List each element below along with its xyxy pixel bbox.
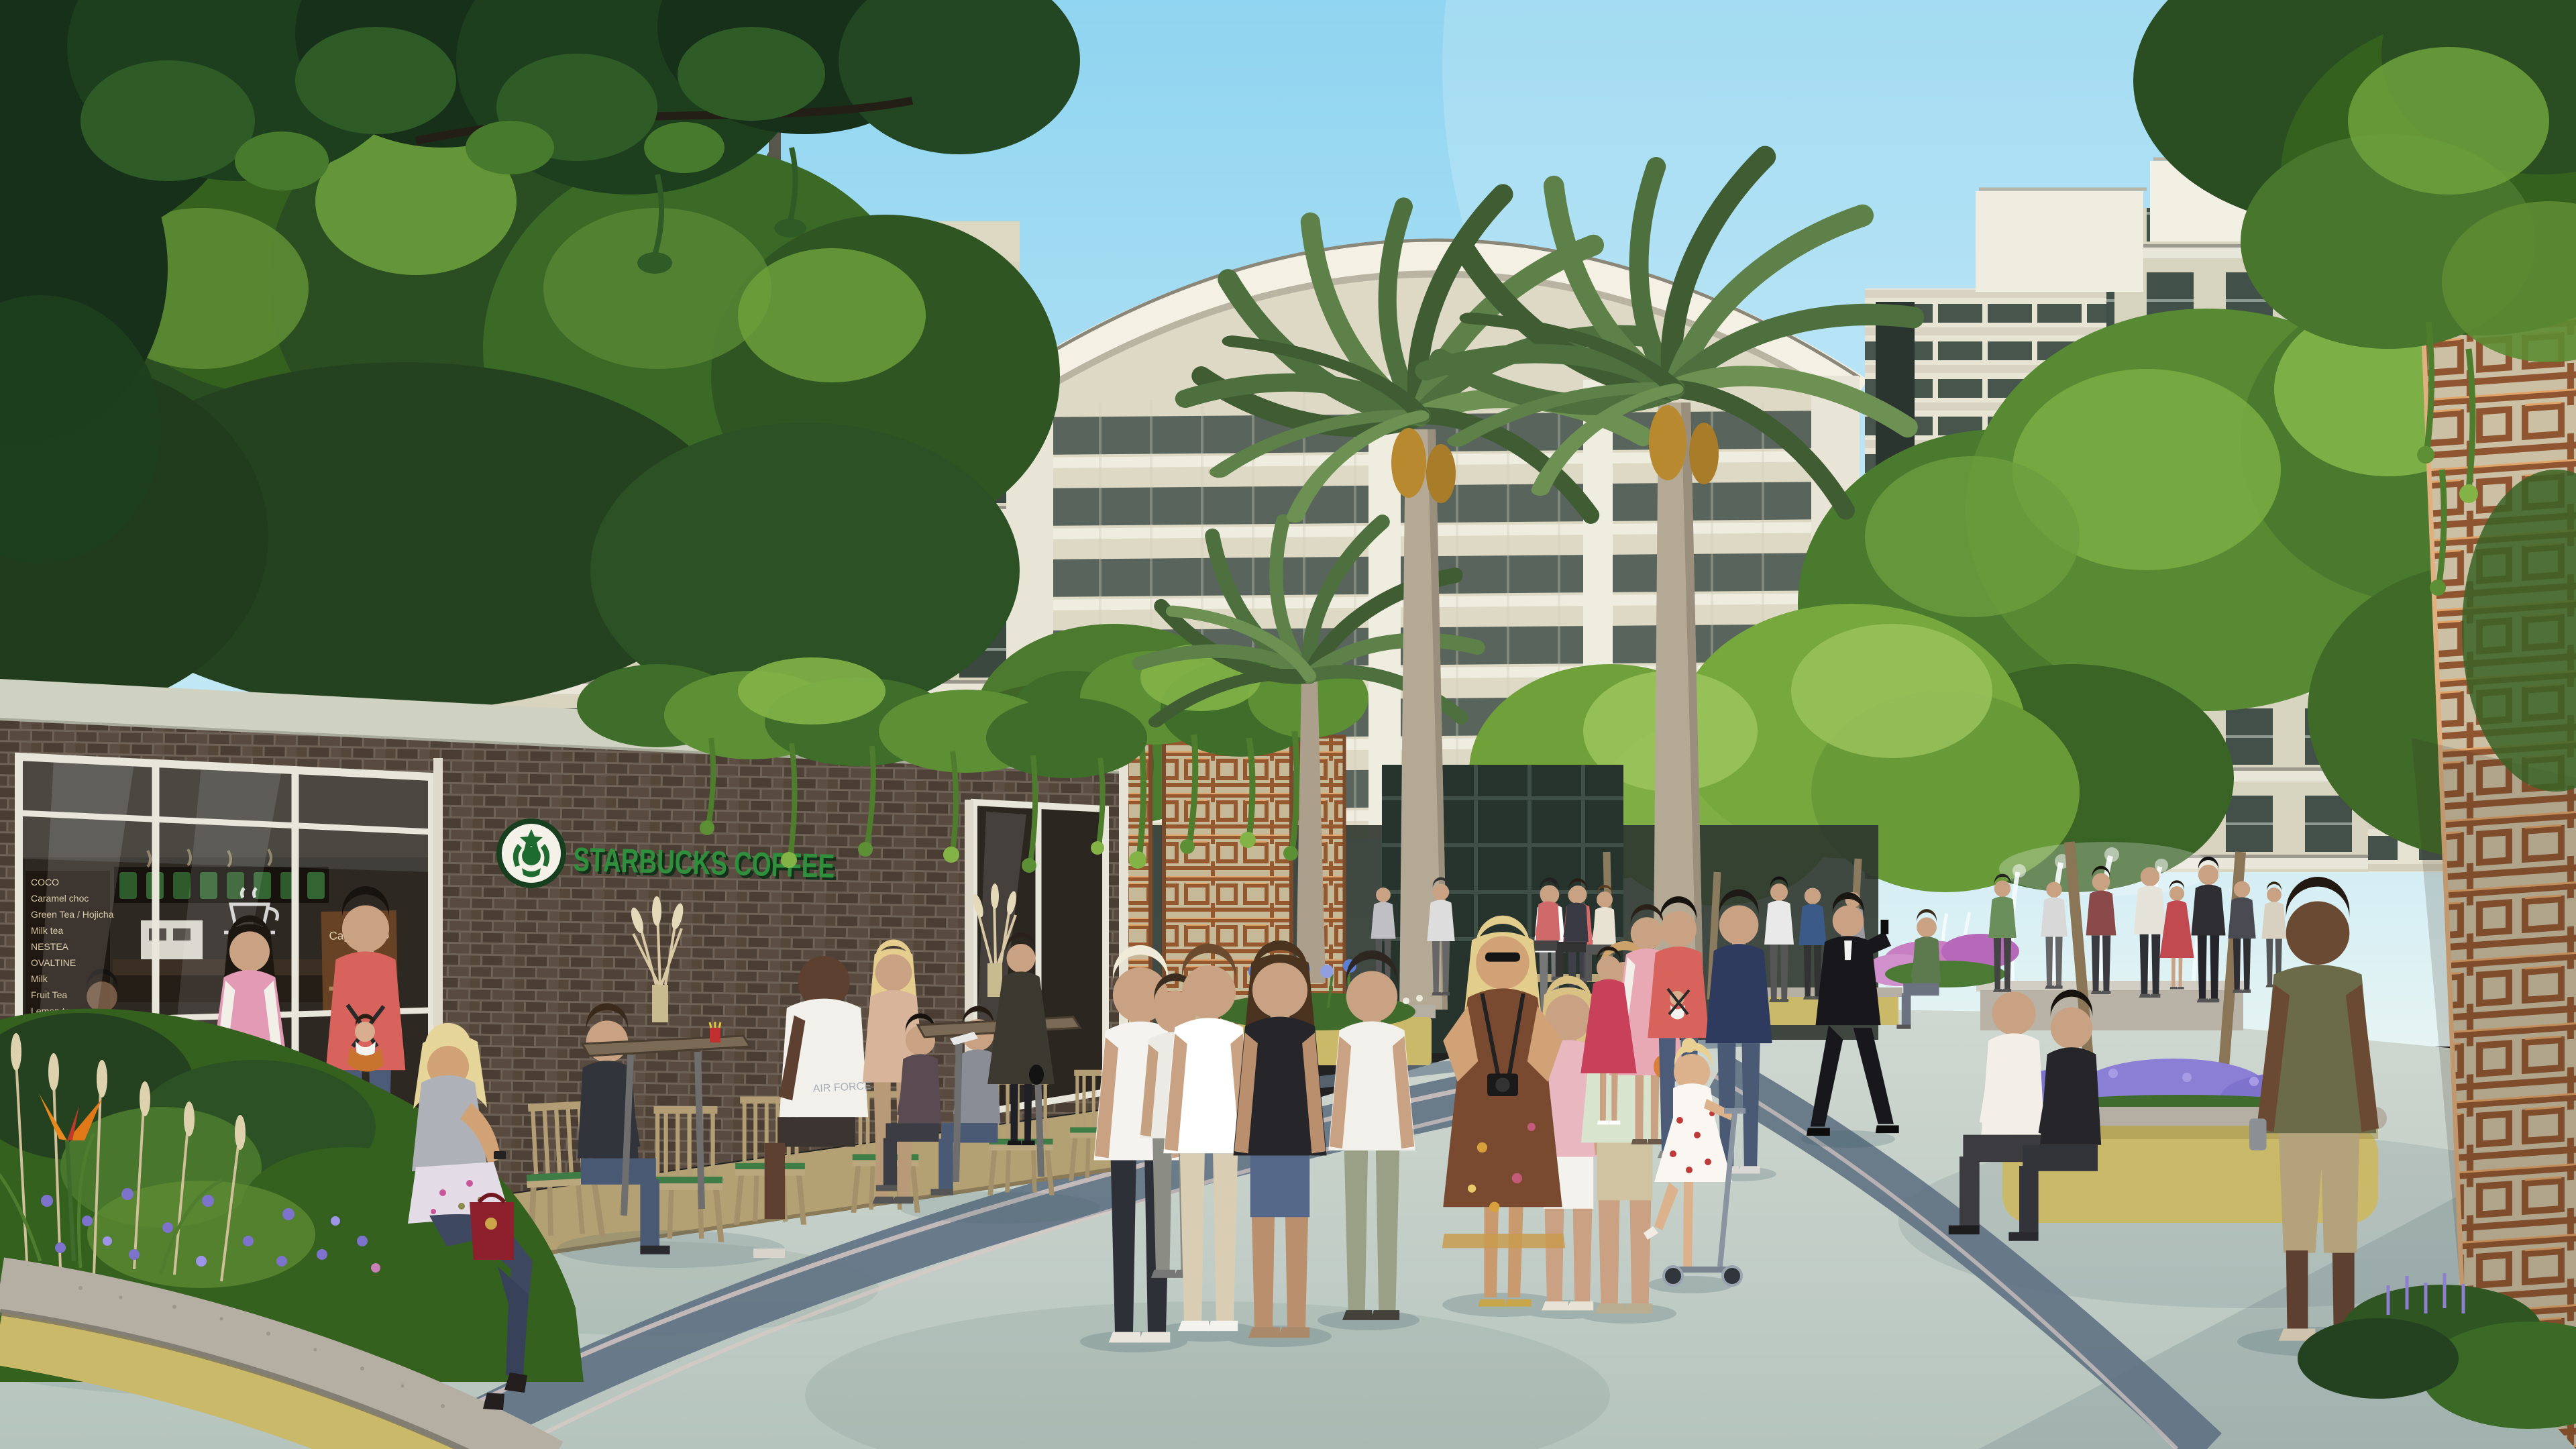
promenade-rendering: COCO Caramel choc Green Tea / Hojicha Mi…	[0, 0, 2576, 1449]
scene-canvas: COCO Caramel choc Green Tea / Hojicha Mi…	[0, 0, 2576, 1449]
date-cluster	[1391, 428, 1426, 498]
fries-cup	[710, 1028, 720, 1042]
phone	[494, 1151, 506, 1159]
sunglasses	[1485, 953, 1520, 962]
hair-bun	[1682, 1038, 1697, 1053]
starbucks-siren-logo-icon	[496, 818, 566, 888]
red-shopping-bag	[470, 1195, 514, 1260]
penthouse-box	[1976, 191, 2143, 292]
water-bottle	[2249, 1118, 2266, 1150]
